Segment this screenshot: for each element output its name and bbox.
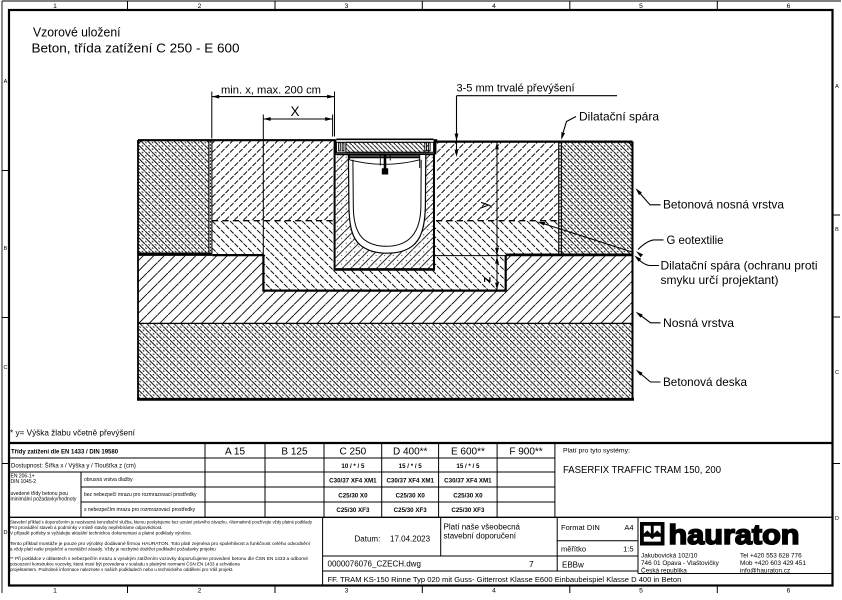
svg-text:Dostupnost: Šířka x / Výška y: Dostupnost: Šířka x / Výška y / Tloušťka… bbox=[11, 463, 136, 470]
svg-text:C30/37 XF4 XM1: C30/37 XF4 XM1 bbox=[444, 477, 492, 484]
svg-text:15 / * / 5: 15 / * / 5 bbox=[456, 463, 480, 470]
svg-text:A4: A4 bbox=[624, 523, 633, 532]
svg-text:F 900**: F 900** bbox=[509, 447, 542, 458]
svg-text:D 400**: D 400** bbox=[393, 447, 428, 458]
svg-text:FF. TRAM KS-150 Rinne Typ 020: FF. TRAM KS-150 Rinne Typ 020 mit Guss- … bbox=[328, 575, 682, 584]
svg-text:2: 2 bbox=[198, 588, 202, 595]
svg-text:y: y bbox=[477, 202, 492, 209]
svg-text:Stavební příklad s doporučením: Stavební příklad s doporučením je nezáva… bbox=[10, 519, 313, 524]
svg-text:C25/30 X0: C25/30 X0 bbox=[453, 492, 483, 499]
svg-text:V případě potřeby si vyžádejte: V případě potřeby si vyžádejte aktuální … bbox=[10, 530, 192, 535]
svg-text:Dilatační spára: Dilatační spára bbox=[579, 110, 659, 124]
svg-text:A 15: A 15 bbox=[225, 447, 245, 458]
svg-text:3-5 mm trvalé převýšení: 3-5 mm trvalé převýšení bbox=[457, 83, 575, 95]
svg-text:10 / * / 5: 10 / * / 5 bbox=[341, 463, 365, 470]
svg-text:C30/37 XF4 XM1: C30/37 XF4 XM1 bbox=[329, 477, 377, 484]
svg-text:stavební doporučení: stavební doporučení bbox=[444, 532, 517, 541]
svg-text:E 600**: E 600** bbox=[451, 447, 485, 458]
svg-text:posouzení konstrukce vozovky,: posouzení konstrukce vozovky, která musí… bbox=[10, 560, 240, 566]
svg-text:6: 6 bbox=[787, 588, 791, 595]
svg-text:a vždy platí naše projekční a: a vždy platí naše projekční a montážní z… bbox=[10, 546, 216, 551]
svg-text:** Při pokládce v oblastech s: ** Při pokládce v oblastech s nebezpečím… bbox=[10, 555, 309, 561]
svg-text:Betonová nosná vrstva: Betonová nosná vrstva bbox=[663, 198, 784, 212]
svg-text:1:5: 1:5 bbox=[623, 545, 633, 554]
svg-text:746 01 Opava - Vlaštovičky: 746 01 Opava - Vlaštovičky bbox=[641, 560, 720, 567]
svg-text:C 250: C 250 bbox=[340, 447, 367, 458]
svg-text:s nebezpečím mrazu pro rozmraz: s nebezpečím mrazu pro rozmrazovací pros… bbox=[84, 507, 196, 513]
svg-text:Tento příklad montáže je pouze: Tento příklad montáže je pouze pro výrob… bbox=[10, 541, 311, 546]
svg-text:hauraton: hauraton bbox=[669, 519, 800, 550]
svg-text:min. x, max. 200 cm: min. x, max. 200 cm bbox=[221, 85, 321, 97]
svg-text:Datum:: Datum: bbox=[355, 535, 381, 544]
svg-text:Tel +420 553 628 776: Tel +420 553 628 776 bbox=[740, 553, 802, 560]
svg-text:EBBw: EBBw bbox=[562, 561, 584, 570]
svg-text:D: D bbox=[4, 530, 8, 536]
svg-text:5: 5 bbox=[639, 588, 643, 595]
svg-text:B: B bbox=[4, 246, 8, 252]
svg-text:Jakubovická 102/10: Jakubovická 102/10 bbox=[641, 553, 698, 560]
svg-text:Pro provádění staveb a podmínk: Pro provádění staveb a podmínky v místě … bbox=[10, 525, 162, 530]
svg-text:C25/30 XF3: C25/30 XF3 bbox=[451, 507, 485, 514]
svg-text:Betonová deska: Betonová deska bbox=[663, 375, 747, 389]
svg-text:3: 3 bbox=[345, 588, 349, 595]
svg-text:X: X bbox=[290, 104, 299, 119]
svg-text:0000076076_CZECH.dwg: 0000076076_CZECH.dwg bbox=[328, 560, 421, 569]
svg-text:D: D bbox=[835, 516, 839, 522]
svg-text:měřítko: měřítko bbox=[561, 545, 586, 554]
svg-text:FASERFIX TRAFFIC TRAM 150, 200: FASERFIX TRAFFIC TRAM 150, 200 bbox=[563, 464, 721, 476]
svg-text:bez nebezpečí mrazu pro rozmra: bez nebezpečí mrazu pro rozmrazovací pro… bbox=[84, 492, 197, 498]
svg-text:obrusná vrstva dlažby: obrusná vrstva dlažby bbox=[84, 477, 133, 483]
svg-text:Nosná vrstva: Nosná vrstva bbox=[663, 316, 734, 330]
svg-text:C25/30 XF3: C25/30 XF3 bbox=[394, 507, 428, 514]
svg-text:15 / * / 5: 15 / * / 5 bbox=[399, 463, 423, 470]
svg-text:* y= Výška žlabu včetně převýš: * y= Výška žlabu včetně převýšení bbox=[10, 429, 136, 438]
svg-text:smyku určí projektant): smyku určí projektant) bbox=[661, 273, 779, 287]
svg-text:1: 1 bbox=[53, 588, 57, 595]
svg-text:Platí pro tyto systémy:: Platí pro tyto systémy: bbox=[563, 448, 630, 455]
svg-text:C: C bbox=[4, 365, 8, 371]
svg-text:minimální požadavky/hodnoty: minimální požadavky/hodnoty bbox=[11, 497, 77, 503]
svg-text:Platí naše všeobecná: Platí naše všeobecná bbox=[444, 523, 521, 532]
svg-text:z: z bbox=[482, 277, 494, 283]
svg-text:G eotextilie: G eotextilie bbox=[667, 233, 724, 247]
svg-text:Třídy zatížení dle EN 1433 / D: Třídy zatížení dle EN 1433 / DIN 19580 bbox=[11, 450, 119, 456]
svg-text:Format DIN: Format DIN bbox=[561, 523, 600, 532]
svg-text:C25/30 X0: C25/30 X0 bbox=[338, 492, 368, 499]
svg-text:B 125: B 125 bbox=[281, 447, 308, 458]
svg-text:Vzorové uložení: Vzorové uložení bbox=[33, 24, 121, 39]
svg-text:Mob +420 603 429 451: Mob +420 603 429 451 bbox=[740, 560, 806, 567]
svg-text:A: A bbox=[4, 79, 8, 85]
svg-text:C30/37 XF4 XM1: C30/37 XF4 XM1 bbox=[386, 477, 434, 484]
svg-text:DIN 1045-2: DIN 1045-2 bbox=[11, 479, 37, 485]
svg-text:17.04.2023: 17.04.2023 bbox=[390, 535, 431, 544]
svg-text:C: C bbox=[835, 370, 839, 376]
svg-text:4: 4 bbox=[492, 588, 496, 595]
svg-text:Beton, třída zatížení C 250 -: Beton, třída zatížení C 250 - E 600 bbox=[32, 40, 240, 55]
svg-text:Česká republika: Česká republika bbox=[641, 566, 687, 575]
svg-text:info@hauraton.cz: info@hauraton.cz bbox=[740, 568, 790, 575]
svg-text:C25/30 XF3: C25/30 XF3 bbox=[336, 507, 370, 514]
svg-text:projektantem. Podrobné informa: projektantem. Podrobné informace nalezne… bbox=[10, 567, 233, 572]
svg-text:A: A bbox=[835, 84, 839, 90]
svg-text:7: 7 bbox=[529, 559, 534, 569]
svg-text:B: B bbox=[835, 227, 839, 233]
svg-text:C25/30 X0: C25/30 X0 bbox=[396, 492, 426, 499]
svg-text:Dilatační spára (ochranu proti: Dilatační spára (ochranu proti bbox=[661, 259, 818, 273]
